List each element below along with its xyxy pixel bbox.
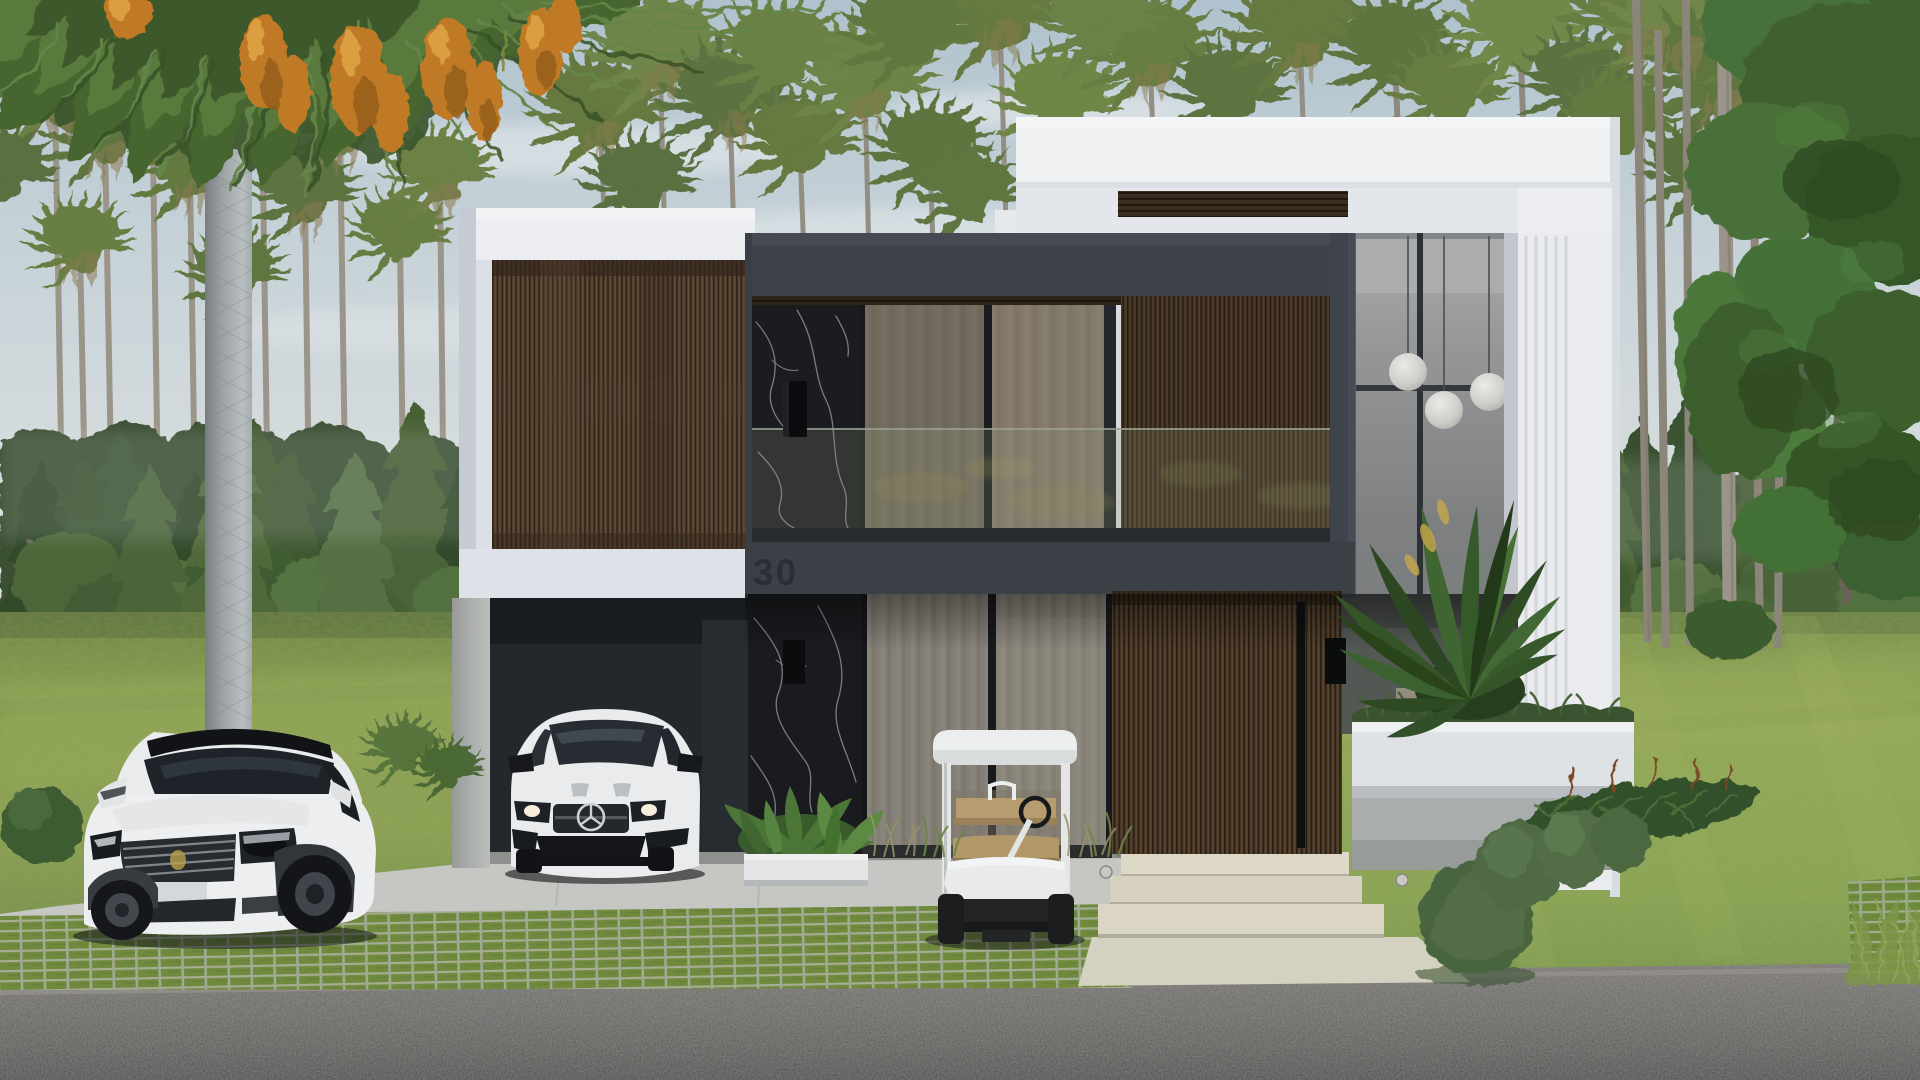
svg-text:30: 30 [753,552,798,593]
